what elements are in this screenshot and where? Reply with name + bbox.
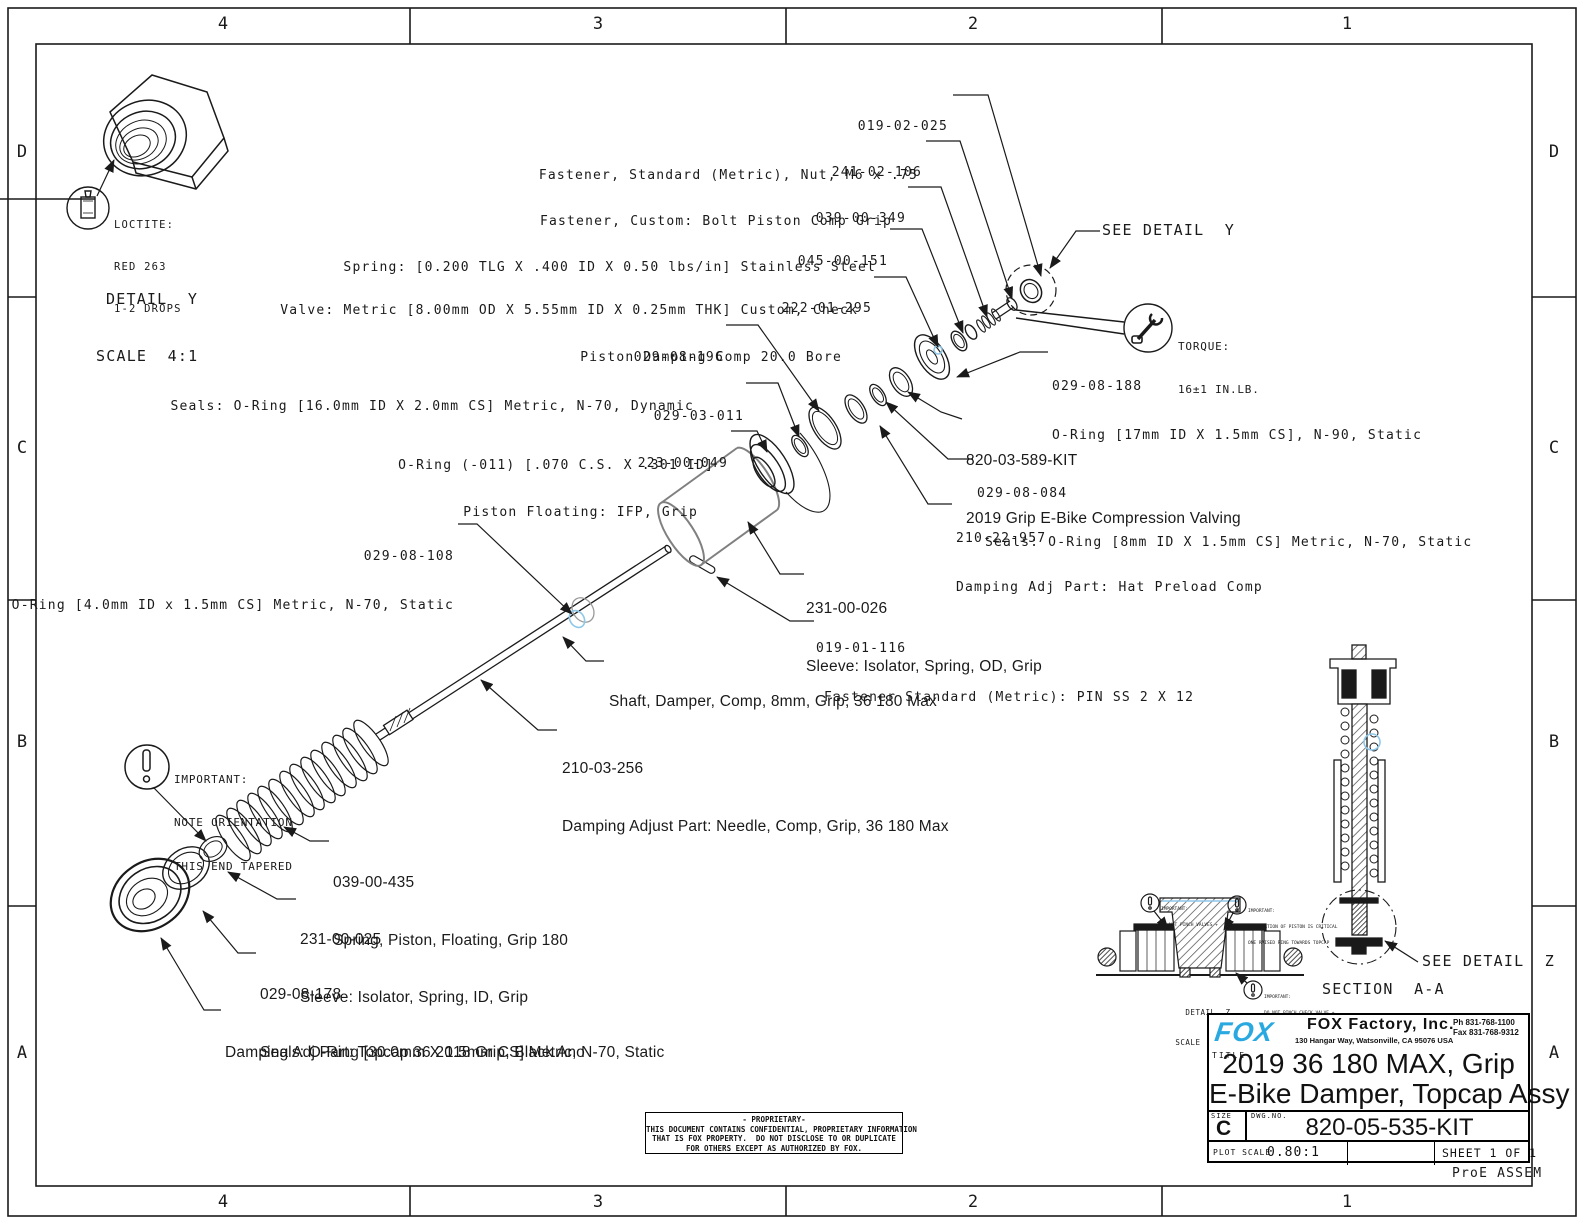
zone-col-2-top: 2 — [958, 14, 988, 35]
zone-row-a-left: A — [8, 1043, 36, 1064]
section-aa-caption: SECTION A-A — [1322, 980, 1445, 999]
plot-scale-label: PLOT SCALE — [1213, 1148, 1271, 1157]
zone-row-d-left: D — [8, 142, 36, 163]
part-number: 029-08-178 — [260, 985, 664, 1004]
detail-y-caption: DETAIL Y SCALE 4:1 — [96, 252, 198, 384]
title-block: FOX FOX Factory, Inc. 130 Hangar Way, Wa… — [1207, 1013, 1530, 1163]
plot-scale-value: 0.80:1 — [1267, 1145, 1320, 1160]
proprietary-line3: THAT IS FOX PROPERTY. DO NOT DISCLOSE TO… — [646, 1134, 902, 1144]
torque-label: TORQUE: — [1178, 340, 1260, 354]
fox-logo: FOX — [1213, 1017, 1276, 1048]
part-number: 039-00-435 — [333, 873, 568, 892]
zone-col-3-bottom: 3 — [583, 1192, 613, 1213]
important-line3: THIS END TAPERED — [174, 860, 293, 874]
proprietary-notice: - PROPRIETARY- THIS DOCUMENT CONTAINS CO… — [645, 1112, 903, 1154]
drawing-title-line1: 2019 36 180 MAX, Grip — [1209, 1048, 1528, 1080]
piston-damping-part — [907, 323, 979, 385]
see-detail-y-note: SEE DETAIL Y — [1102, 221, 1235, 240]
company-address: 130 Hangar Way, Watsonville, CA 95076 US… — [1295, 1036, 1453, 1045]
sheet-number: SHEET 1 OF 1 — [1442, 1146, 1537, 1160]
part-description: Seals: O-Ring [4.0mm ID x 1.5mm CS] Metr… — [0, 598, 454, 614]
part-number: 029-08-108 — [0, 549, 454, 565]
bottom-row-vline-2 — [1434, 1140, 1435, 1165]
dz-orient-line3: ONE RAISED RING TOWARDS TOPCAP — [1248, 941, 1337, 946]
zone-col-3-top: 3 — [583, 14, 613, 35]
important-line1: IMPORTANT: — [174, 773, 293, 787]
drawing-sheet: 4 3 2 1 4 3 2 1 D C B A D C B A 019-02-0… — [0, 0, 1584, 1224]
zone-row-b-right: B — [1540, 732, 1568, 753]
part-number: 223-00-049 — [463, 456, 728, 472]
part-description: Shaft, Damper, Comp, 8mm, Grip, 36 180 M… — [609, 692, 937, 711]
important-taper-note: IMPORTANT: NOTE ORIENTATION THIS END TAP… — [174, 744, 293, 889]
zone-col-1-bottom: 1 — [1332, 1192, 1362, 1213]
dz-valves-line2: DO NOT PINCH VALVES + — [1161, 923, 1218, 928]
footer-note: ProE ASSEM — [1452, 1166, 1542, 1182]
part-number: 210-22-957 — [956, 531, 1263, 547]
zone-col-1-top: 1 — [1332, 14, 1362, 35]
company-name: FOX Factory, Inc. — [1307, 1016, 1454, 1034]
see-detail-z-note: SEE DETAIL Z — [1422, 952, 1555, 971]
detail-z-note-valves: IMPORTANT: DO NOT PINCH VALVES + — [1161, 896, 1218, 934]
dwg-no-value: 820-05-535-KIT — [1247, 1114, 1532, 1142]
dz-orient-line1: IMPORTANT: — [1248, 909, 1337, 914]
callout-piston-floating: 223-00-049 Piston Floating: IFP, Grip — [463, 423, 728, 538]
part-description: Damping Adj Part: Topcap 36 2018 Grip, B… — [225, 1043, 585, 1062]
loctite-line1: LOCTITE: — [114, 219, 182, 233]
detail-y-hex-nut — [92, 75, 228, 189]
size-value: C — [1216, 1117, 1231, 1141]
bottom-row-vline-1 — [1347, 1140, 1348, 1165]
zone-row-b-left: B — [8, 732, 36, 753]
dz-orient-line2: ORIENTATION OF PISTON IS CRITICAL — [1248, 925, 1337, 930]
zone-row-c-left: C — [8, 438, 36, 459]
floating-piston-part — [742, 428, 830, 512]
detail-y-scale: SCALE 4:1 — [96, 347, 198, 366]
zone-col-4-top: 4 — [208, 14, 238, 35]
part-description: Piston Floating: IFP, Grip — [463, 505, 698, 521]
dz-valves-line1: IMPORTANT: — [1161, 907, 1218, 912]
loctite-icon — [0, 160, 114, 229]
proprietary-line1: - PROPRIETARY- — [646, 1115, 902, 1125]
part-number: 210-03-256 — [562, 759, 949, 778]
zone-col-4-bottom: 4 — [208, 1192, 238, 1213]
part-description: Damping Adjust Part: Needle, Comp, Grip,… — [562, 817, 949, 836]
zone-row-a-right: A — [1540, 1043, 1568, 1064]
detail-z-note-orientation: IMPORTANT: ORIENTATION OF PISTON IS CRIT… — [1248, 898, 1337, 952]
torque-value: 16±1 IN.LB. — [1178, 383, 1260, 397]
zone-row-c-right: C — [1540, 438, 1568, 459]
part-number: 029-08-196 — [170, 350, 724, 366]
callout-needle: 210-03-256 Damping Adjust Part: Needle, … — [562, 720, 949, 856]
torque-note: TORQUE: 16±1 IN.LB. — [1178, 311, 1260, 412]
company-phone: Ph 831-768-1100 — [1453, 1018, 1515, 1027]
important-line2: NOTE ORIENTATION — [174, 816, 293, 830]
callout-shaft: Shaft, Damper, Comp, 8mm, Grip, 36 180 M… — [609, 653, 937, 731]
detail-y-title: DETAIL Y — [106, 290, 198, 309]
part-number: 222-01-295 — [580, 301, 872, 317]
callout-oring-4: 029-08-108 Seals: O-Ring [4.0mm ID x 1.5… — [0, 516, 454, 631]
check-spring-bolt-nut — [975, 265, 1056, 333]
company-fax: Fax 831-768-9312 — [1453, 1028, 1519, 1037]
proprietary-line4: FOR OTHERS EXCEPT AS AUTHORIZED BY FOX. — [646, 1144, 902, 1154]
torque-icon — [1016, 304, 1172, 352]
proprietary-line2: THIS DOCUMENT CONTAINS CONFIDENTIAL, PRO… — [646, 1125, 902, 1135]
zone-row-d-right: D — [1540, 142, 1568, 163]
callout-topcap: Damping Adj Part: Topcap 36 2018 Grip, B… — [225, 1004, 585, 1082]
drawing-title-line2: E-Bike Damper, Topcap Assy — [1209, 1078, 1528, 1110]
zone-col-2-bottom: 2 — [958, 1192, 988, 1213]
